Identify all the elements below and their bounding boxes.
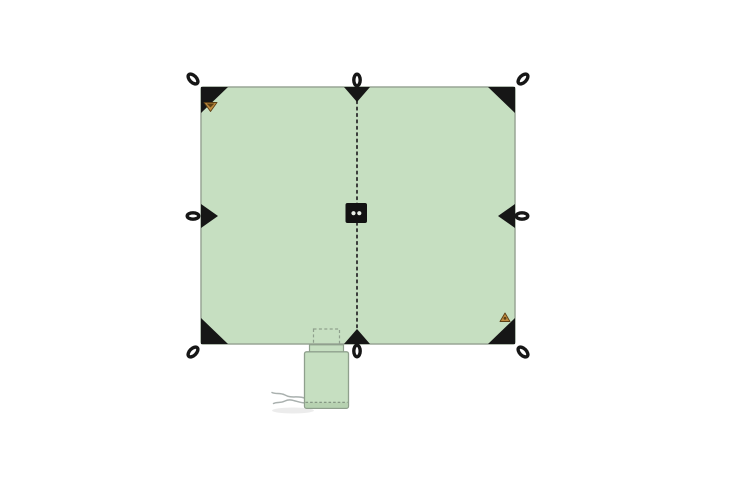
sack-neck <box>310 345 344 352</box>
sack-body <box>305 352 349 409</box>
product-image-canvas <box>0 0 745 500</box>
patch-square <box>346 203 368 223</box>
center-brand-patch <box>346 203 368 223</box>
sack-bottom-band <box>306 403 348 408</box>
patch-dot <box>357 211 361 215</box>
logo-mark <box>504 317 507 320</box>
patch-dot <box>351 211 355 215</box>
tarp-product-illustration <box>0 0 745 500</box>
